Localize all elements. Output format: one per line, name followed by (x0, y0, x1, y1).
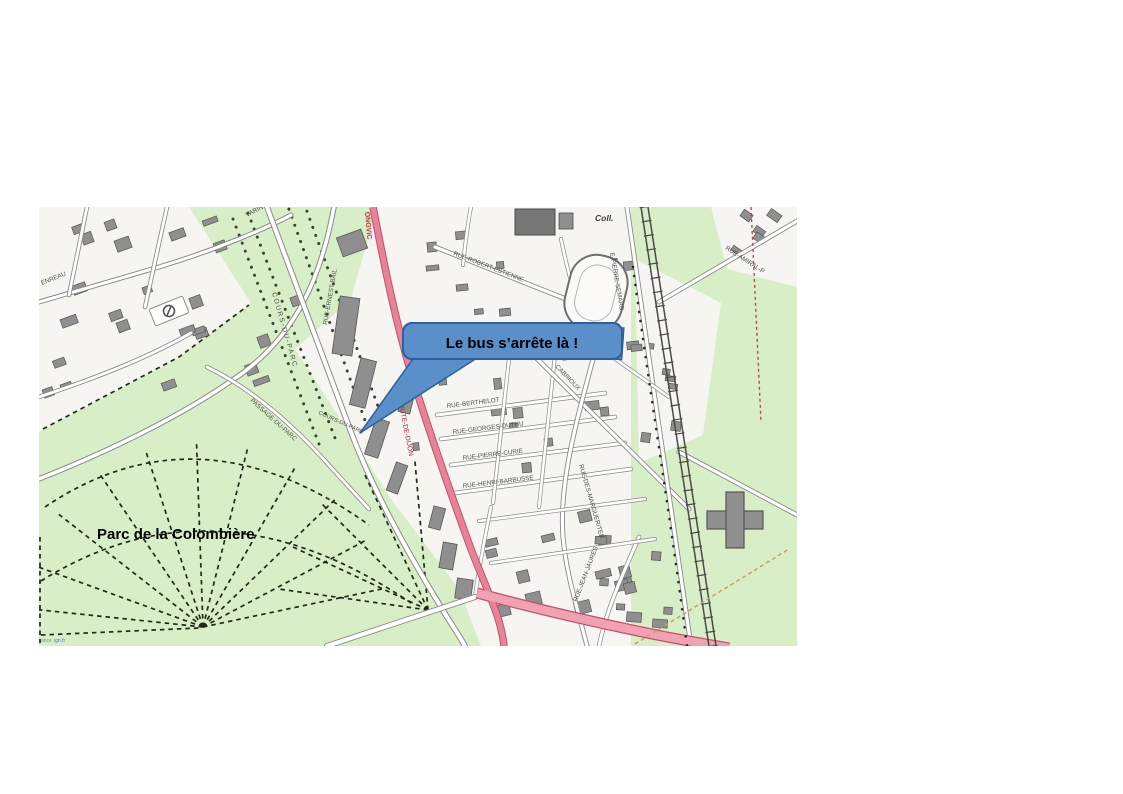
building (493, 378, 501, 389)
building (641, 432, 651, 442)
building (616, 604, 625, 611)
building (652, 619, 667, 628)
building (456, 284, 468, 292)
callout-text: Le bus s’arrête là ! (446, 335, 579, 352)
map-canvas: Parc de la ColombièreRUE-ROBERT-ESTIENNE… (39, 207, 797, 646)
building (600, 407, 609, 416)
church-cross-building-v (726, 492, 744, 548)
building (426, 265, 439, 271)
college-building (515, 209, 555, 235)
park-label: Parc de la Colombière (97, 526, 255, 543)
poi-label-college: Coll. (595, 213, 613, 223)
building (513, 407, 523, 418)
building (516, 569, 530, 583)
ign-map-image: Parc de la ColombièreRUE-ROBERT-ESTIENNE… (39, 207, 797, 646)
building (522, 462, 532, 473)
building (664, 607, 673, 614)
college-building-annex (559, 213, 573, 229)
attribution-text: ance (41, 638, 52, 644)
building (651, 551, 661, 560)
building (499, 308, 511, 316)
building (626, 612, 641, 623)
attribution-link[interactable]: ign.fr (54, 638, 65, 644)
building (631, 344, 643, 352)
building (474, 309, 483, 315)
building (600, 578, 609, 586)
building (623, 581, 636, 594)
